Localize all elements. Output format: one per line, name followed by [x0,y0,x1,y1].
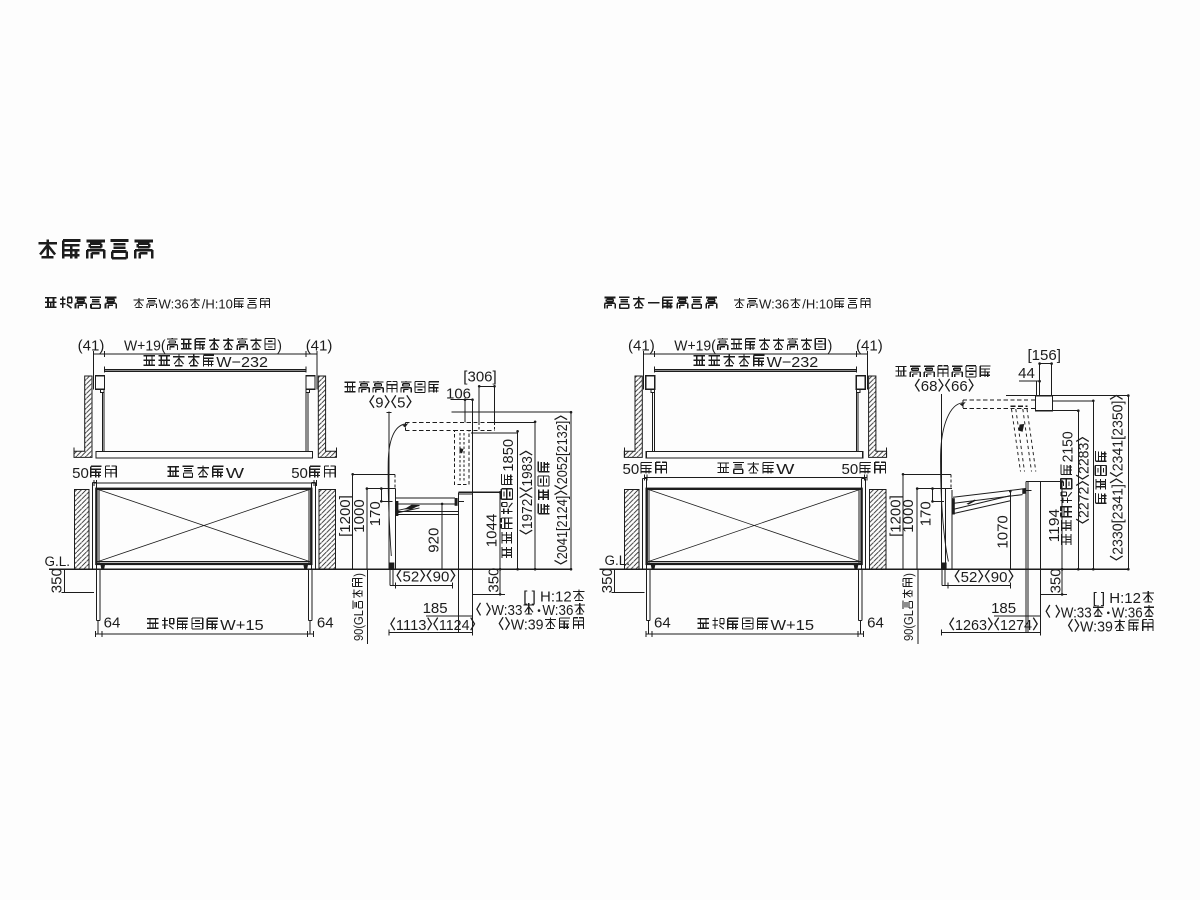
svg-text:185: 185 [423,600,448,617]
svg-text:W+19(: W+19( [674,337,716,354]
svg-text:W:36: W:36 [1112,604,1143,621]
svg-text:5: 5 [397,395,405,412]
svg-text:90(GL: 90(GL [351,610,366,641]
svg-text:52: 52 [961,569,978,586]
svg-text:1000: 1000 [900,499,917,532]
svg-text:/H:10: /H:10 [802,297,833,312]
svg-text:185: 185 [991,600,1016,617]
svg-text:G.L.: G.L. [45,554,71,569]
svg-text:52: 52 [403,568,420,585]
svg-text:W:36: W:36 [759,297,789,312]
svg-text:2052[2132]: 2052[2132] [554,421,571,485]
svg-text:2283: 2283 [1076,443,1093,474]
svg-text:): ) [828,337,833,354]
svg-text:50: 50 [72,465,89,482]
svg-text:W: W [776,461,795,478]
svg-text:50: 50 [842,461,859,478]
svg-text:W+19(: W+19( [124,337,166,354]
svg-text:64: 64 [867,615,884,632]
svg-text:1124: 1124 [439,617,470,634]
svg-text:G.L.: G.L. [605,553,631,568]
svg-text:(41): (41) [78,337,105,354]
svg-text:W:39: W:39 [511,617,544,634]
svg-text:9: 9 [375,395,383,412]
svg-text:W:36: W:36 [542,602,573,619]
svg-text:1044: 1044 [483,514,500,547]
svg-text:/H:10: /H:10 [202,297,233,312]
svg-text:170: 170 [367,501,384,526]
svg-text:(41): (41) [856,337,883,354]
svg-text:50: 50 [623,461,640,478]
svg-text:W+15: W+15 [771,617,815,634]
svg-text:W:36: W:36 [159,297,189,312]
svg-text:90: 90 [433,568,450,585]
svg-text:(41): (41) [628,337,655,354]
svg-text:1983: 1983 [519,456,536,486]
svg-text:[306]: [306] [463,369,496,386]
svg-text:350: 350 [1047,568,1064,593]
svg-text:1113: 1113 [396,617,427,634]
svg-text:1000: 1000 [351,499,368,532]
svg-text:1263: 1263 [955,617,987,634]
svg-text:1972: 1972 [519,499,536,529]
svg-text:64: 64 [317,615,334,632]
svg-text:44: 44 [1018,365,1035,382]
svg-text:90: 90 [991,569,1008,586]
svg-text:64: 64 [104,615,121,632]
svg-text:): ) [901,573,916,577]
svg-text:W−232: W−232 [767,354,819,371]
svg-text:W−232: W−232 [216,354,268,371]
svg-text:2150: 2150 [1060,431,1077,462]
svg-text:): ) [277,337,282,354]
svg-text:1850: 1850 [500,439,517,472]
svg-text:170: 170 [917,501,934,526]
svg-text:1070: 1070 [994,515,1011,548]
svg-text:1274: 1274 [1000,617,1032,634]
svg-text:90(GL: 90(GL [901,610,916,641]
svg-text:66: 66 [951,378,968,395]
svg-text:2041[2124]: 2041[2124] [554,496,571,560]
svg-text:64: 64 [654,615,671,632]
svg-text:350: 350 [486,568,503,593]
svg-text:[156]: [156] [1028,347,1061,364]
svg-text:2330[2341]: 2330[2341] [1109,484,1126,555]
svg-text:920: 920 [425,528,442,553]
svg-text:W: W [226,465,245,482]
svg-text:W:39: W:39 [1080,618,1113,635]
svg-text:350: 350 [599,568,616,593]
svg-text:(41): (41) [306,337,333,354]
svg-text:68: 68 [921,378,938,395]
svg-text:W+15: W+15 [220,617,264,634]
svg-text:): ) [351,573,366,577]
svg-text:50: 50 [291,465,308,482]
svg-text:2341[2350]: 2341[2350] [1109,401,1126,472]
svg-text:2272: 2272 [1076,487,1093,518]
svg-text:350: 350 [49,568,66,593]
